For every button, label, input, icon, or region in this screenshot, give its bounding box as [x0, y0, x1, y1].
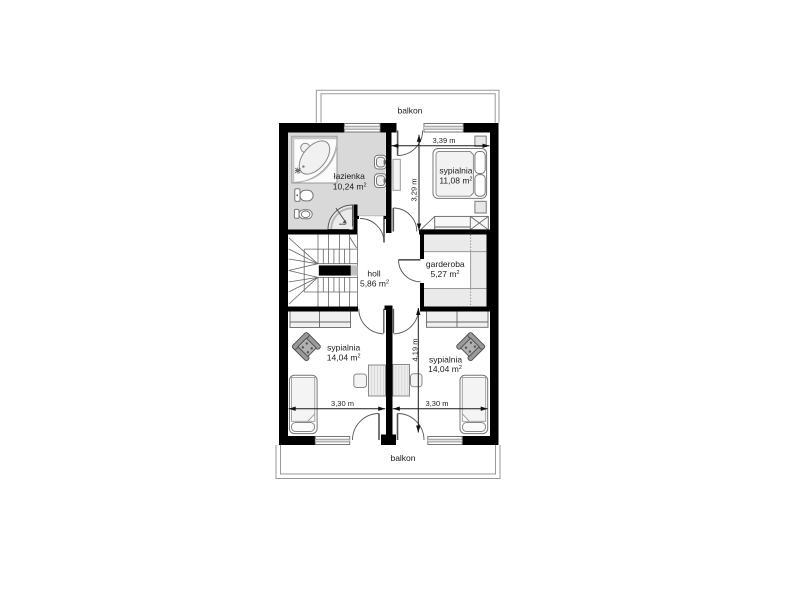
svg-text:3,30 m: 3,30 m [331, 399, 354, 408]
svg-text:3,29 m: 3,29 m [410, 179, 419, 202]
svg-text:sypialnia: sypialnia [429, 355, 462, 365]
svg-text:balkon: balkon [390, 453, 415, 463]
svg-text:10,24 m2: 10,24 m2 [333, 182, 367, 192]
svg-text:sypialnia: sypialnia [327, 343, 360, 353]
svg-text:14,04 m2: 14,04 m2 [327, 353, 361, 363]
svg-text:4,19 m: 4,19 m [410, 339, 419, 362]
svg-text:3,39 m: 3,39 m [433, 136, 456, 145]
svg-text:11,08 m2: 11,08 m2 [439, 176, 472, 186]
svg-text:sypialnia: sypialnia [439, 166, 472, 176]
svg-text:3,30 m: 3,30 m [426, 399, 449, 408]
svg-text:5,27 m2: 5,27 m2 [430, 269, 459, 279]
svg-text:14,04 m2: 14,04 m2 [428, 364, 462, 374]
svg-text:garderoba: garderoba [426, 259, 465, 269]
svg-text:łazienka: łazienka [334, 171, 365, 181]
svg-text:5,86 m2: 5,86 m2 [360, 279, 389, 289]
svg-text:holl: holl [367, 269, 380, 279]
svg-text:balkon: balkon [397, 106, 422, 116]
